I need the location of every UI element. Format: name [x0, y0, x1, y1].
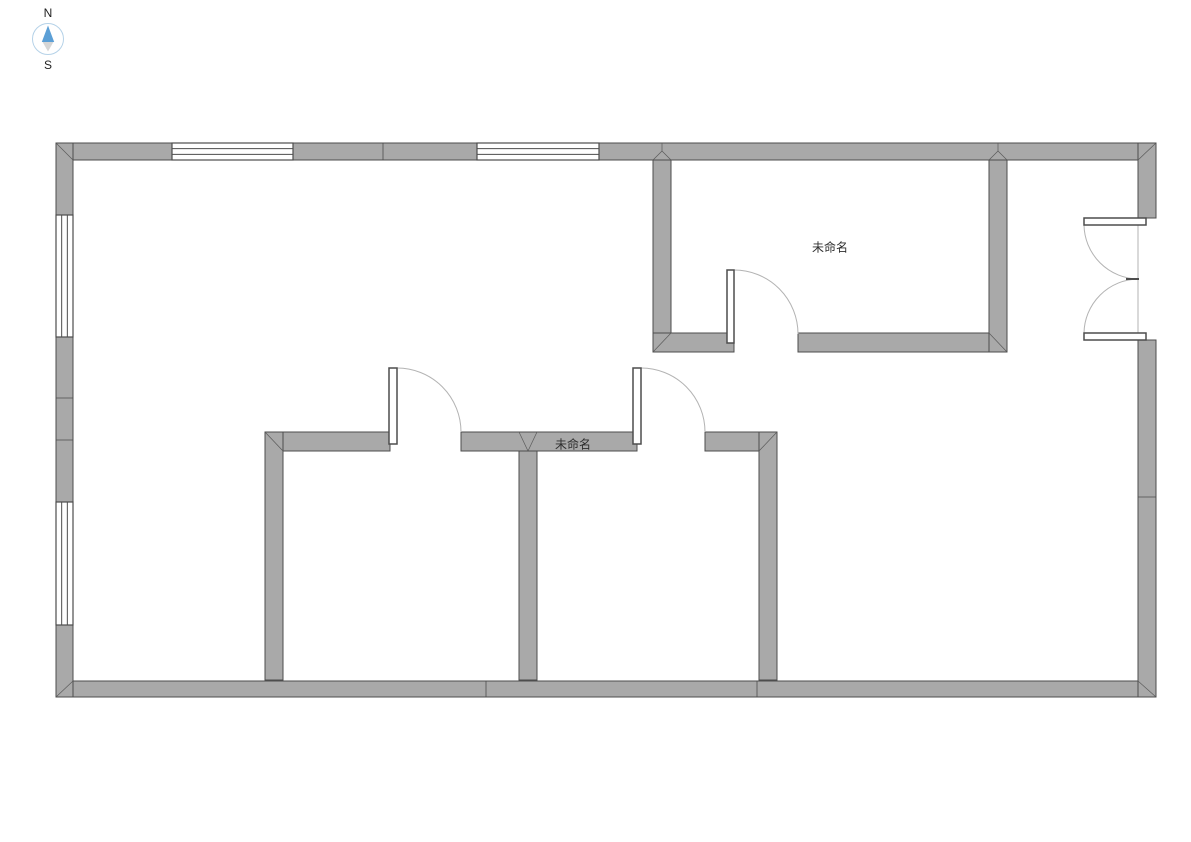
top-wall-right[interactable]	[599, 143, 1156, 160]
compass-south-label: S	[28, 58, 68, 72]
door-arc-room1	[734, 270, 798, 334]
window-left-1[interactable]	[56, 215, 73, 337]
door-arc-room2	[397, 368, 461, 432]
room1-right-wall[interactable]	[989, 160, 1007, 352]
room-label[interactable]: 未命名	[812, 239, 848, 256]
room1-bottom-wall-right[interactable]	[798, 333, 1007, 352]
window-top-2[interactable]	[477, 143, 599, 160]
double-door-leaf-bottom[interactable]	[1084, 333, 1146, 340]
room2-left-wall[interactable]	[265, 432, 283, 680]
double-door-leaf-top[interactable]	[1084, 218, 1146, 225]
right-wall-lower[interactable]	[1138, 340, 1156, 697]
room-label[interactable]: 未命名	[555, 436, 591, 453]
right-wall-upper[interactable]	[1138, 143, 1156, 218]
room3-right-wall[interactable]	[759, 432, 777, 680]
window-left-2[interactable]	[56, 502, 73, 625]
room1-bottom-wall-left[interactable]	[653, 333, 734, 352]
compass: N S	[28, 6, 68, 72]
door-leaf-room1[interactable]	[727, 270, 734, 343]
left-wall-mid[interactable]	[56, 337, 73, 502]
window-top-1[interactable]	[172, 143, 293, 160]
double-door-arc-top	[1084, 225, 1138, 279]
double-door-arc-bottom	[1084, 279, 1138, 333]
left-wall-lower[interactable]	[56, 625, 73, 697]
compass-icon	[31, 22, 65, 56]
door-leaf-room3[interactable]	[633, 368, 641, 444]
door-leaf-room2[interactable]	[389, 368, 397, 444]
floor-plan-canvas[interactable]	[0, 0, 1191, 842]
floor-plan-page: N S 未命名 未命名	[0, 0, 1191, 842]
mid-wall-center[interactable]	[461, 432, 637, 451]
room1-left-wall[interactable]	[653, 160, 671, 352]
rooms-divider-wall[interactable]	[519, 451, 537, 680]
bottom-wall[interactable]	[56, 681, 1156, 697]
door-arc-room3	[641, 368, 705, 432]
top-wall-mid[interactable]	[293, 143, 477, 160]
left-wall-upper[interactable]	[56, 143, 73, 215]
compass-north-label: N	[28, 6, 68, 20]
mid-wall-left[interactable]	[265, 432, 390, 451]
